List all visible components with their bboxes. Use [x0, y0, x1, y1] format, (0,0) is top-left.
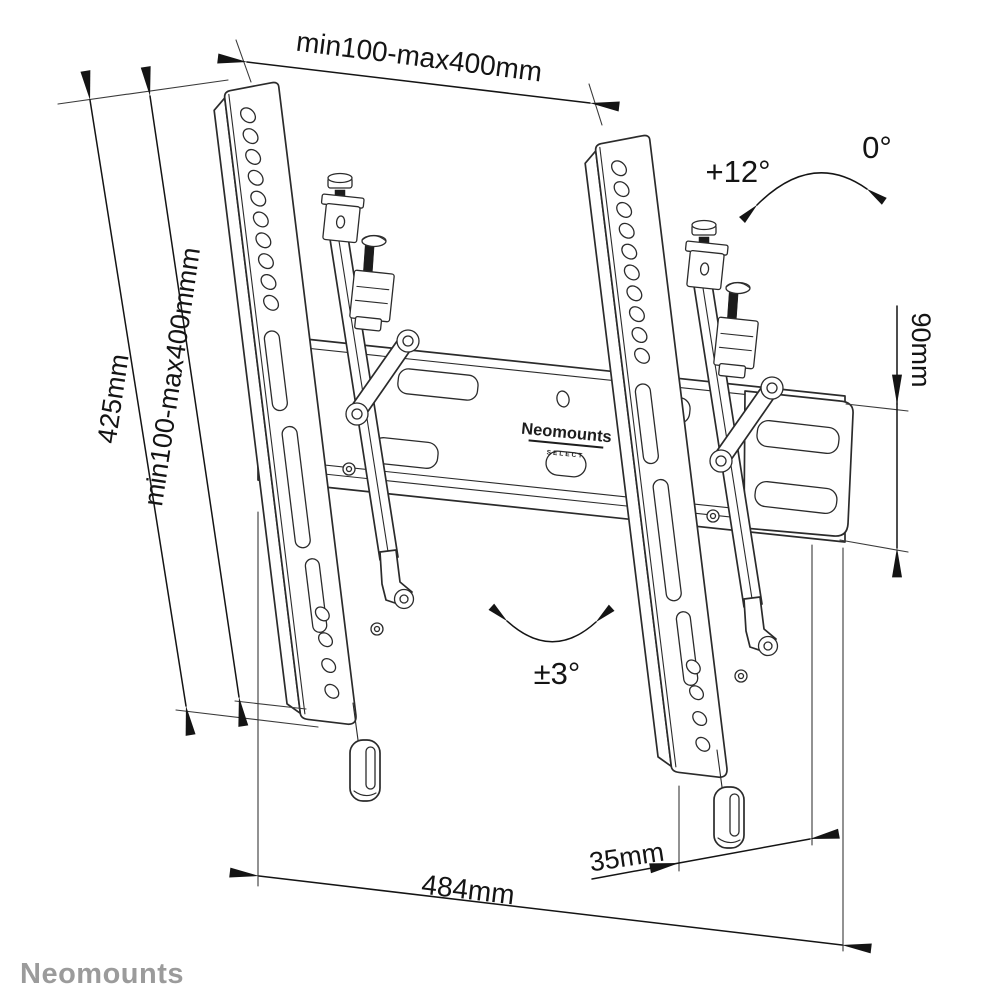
tilt-arc [757, 173, 867, 205]
wall-plate: Neomounts SELECT [258, 334, 853, 542]
dim-plate-height: 90mm [840, 306, 936, 552]
dim-top-width-label: min100-max400mm [295, 26, 544, 88]
swivel-arc [507, 621, 596, 642]
dim-offset-depth-label: 35mm [587, 837, 666, 878]
dim-plate-width-label: 484mm [420, 869, 516, 911]
dim-plate-height-label: 90mm [906, 312, 936, 387]
dim-top-width: min100-max400mm [236, 26, 602, 125]
diagram-canvas: Neomounts SELECT min100-max400mm 425mm m… [0, 0, 1000, 1000]
tv-mount-diagram: Neomounts SELECT min100-max400mm 425mm m… [0, 0, 1000, 1000]
dim-left-height-label: 425mm [92, 352, 135, 445]
tilt-positive-label: +12° [706, 154, 771, 189]
swivel-label: ±3° [534, 656, 581, 691]
tilt-zero-label: 0° [862, 130, 892, 165]
dim-left-vesa-height-label: min100-max400mmm [138, 245, 206, 508]
brand-logo: Neomounts [20, 958, 184, 990]
swivel-angle-annotation: ±3° [507, 621, 596, 691]
tilt-angle-annotation: +12° 0° [706, 130, 892, 205]
